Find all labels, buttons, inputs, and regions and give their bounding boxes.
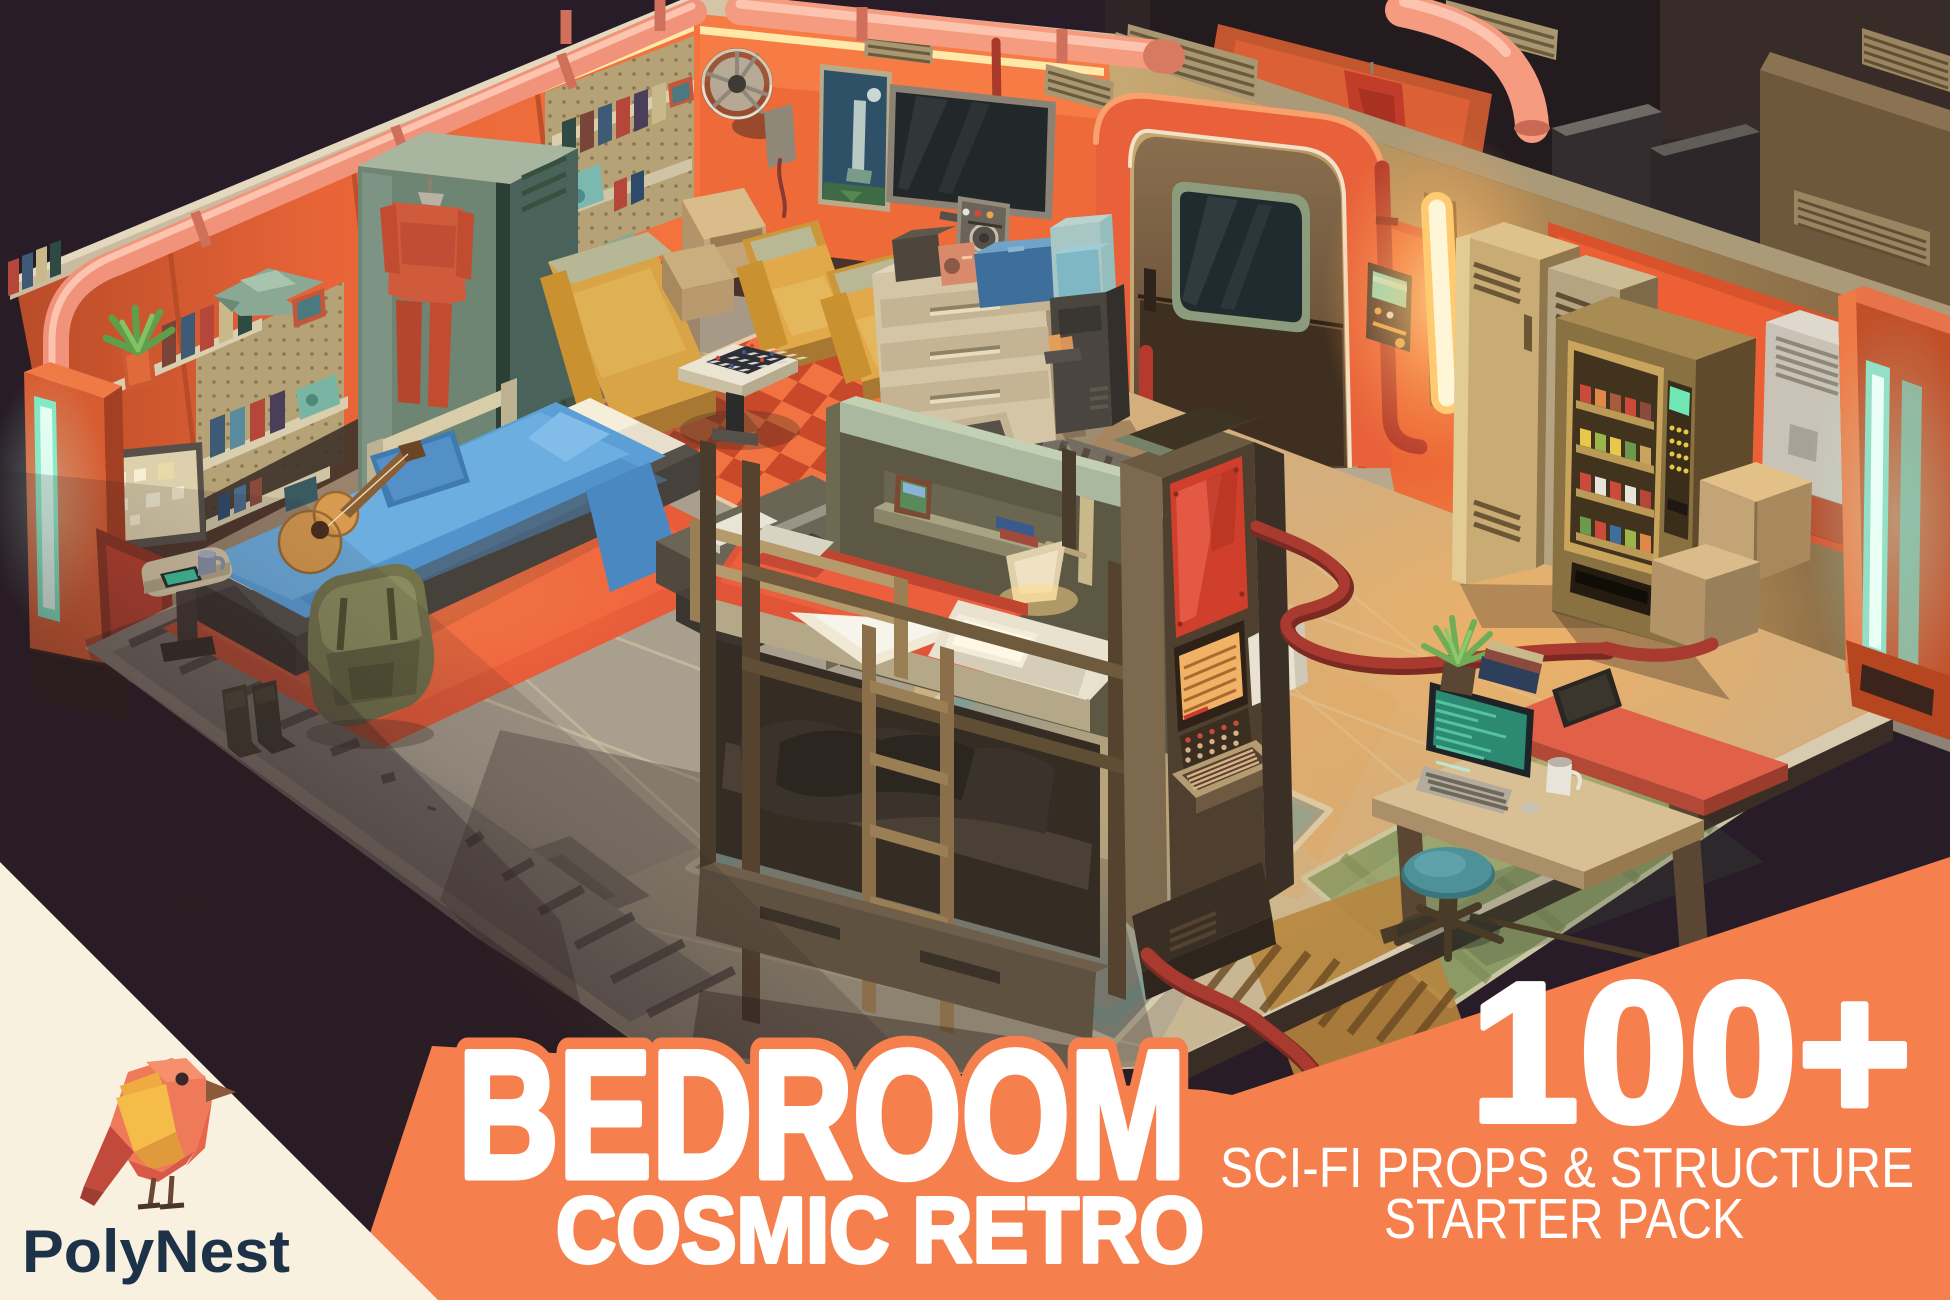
svg-text:PolyNest: PolyNest bbox=[22, 1218, 290, 1285]
svg-text:STARTER PACK: STARTER PACK bbox=[1384, 1187, 1744, 1251]
svg-text:COSMIC RETRO: COSMIC RETRO bbox=[556, 1178, 1204, 1282]
svg-text:100+: 100+ bbox=[1470, 942, 1912, 1164]
